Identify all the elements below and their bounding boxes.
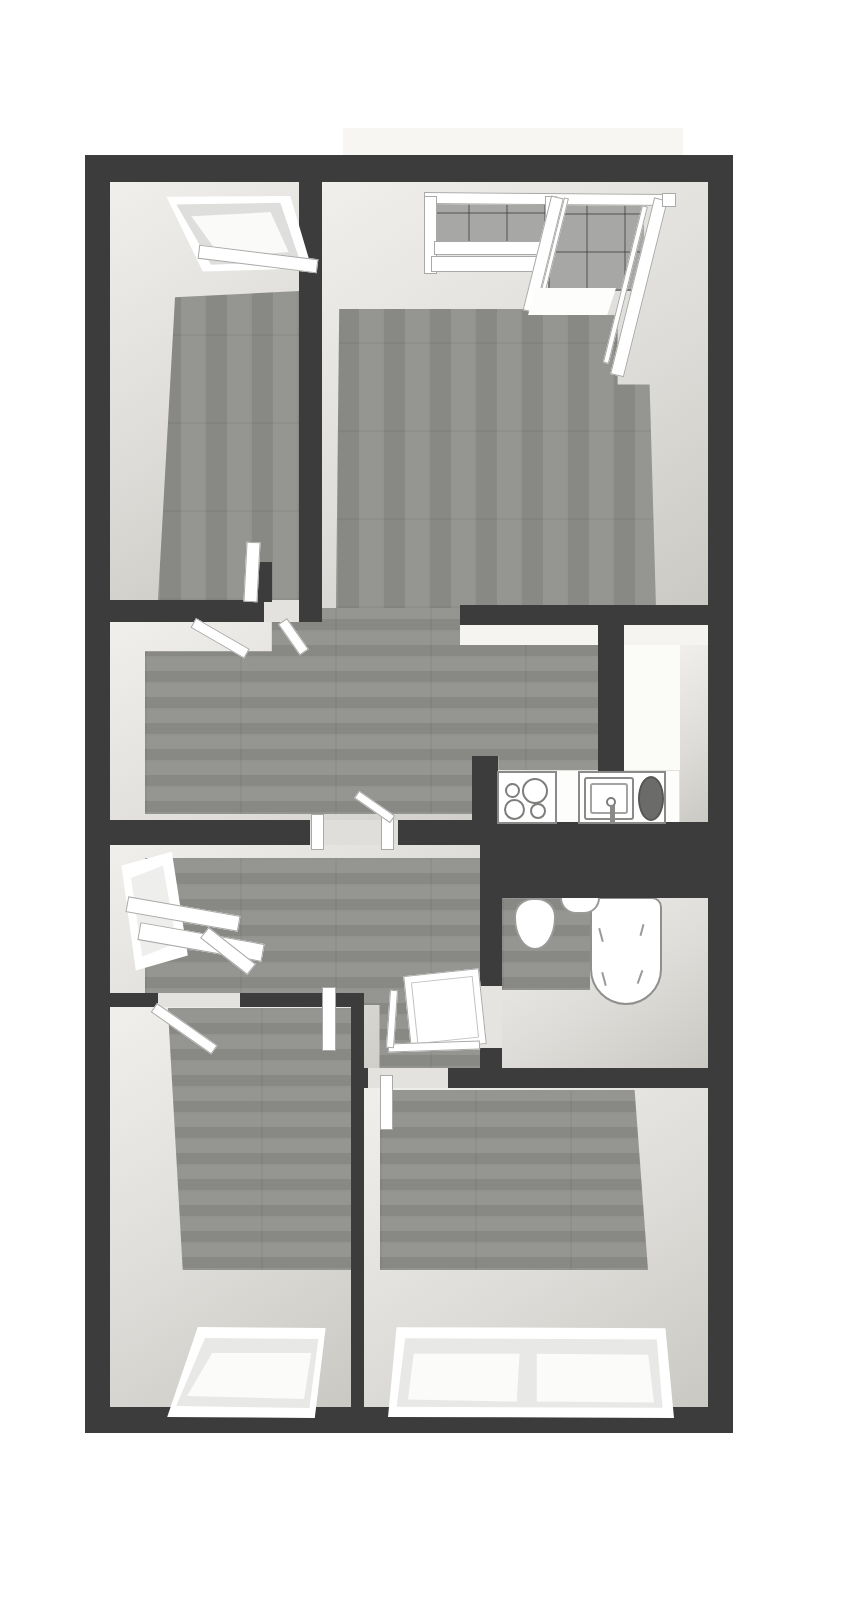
living-window-sill-upper — [434, 241, 548, 255]
bathroom-door-panel-line — [411, 976, 479, 1044]
wall-hall-south-west — [108, 820, 310, 845]
cooktop-burner-large-2 — [504, 799, 525, 820]
page: { "meta": { "width": 867, "height": 1600… — [0, 0, 867, 1600]
room-a-floor — [158, 291, 300, 600]
hall-door-jamb-left — [311, 814, 324, 850]
cooktop-burner-small-1 — [505, 783, 520, 798]
balcony-slab — [343, 128, 683, 157]
wall-hall-south-east — [398, 820, 482, 845]
wall-kitchen-stub — [472, 756, 498, 826]
entry-door-gap — [158, 993, 240, 1007]
bedroom2-door — [380, 1075, 393, 1130]
living-window-right-cap — [662, 193, 676, 207]
cooktop-burner-large-1 — [522, 778, 548, 804]
vestibule-door — [322, 987, 336, 1051]
bedroom2-floor — [380, 1090, 648, 1270]
wall-bathroom-west-lower — [480, 1048, 502, 1070]
kitchen-north-face — [460, 625, 708, 645]
floorplan-image — [0, 0, 867, 1600]
wall-bedroom2-north-west — [351, 1068, 368, 1088]
kitchen-east-face — [680, 645, 710, 825]
wall-shaft — [480, 822, 733, 898]
wall-entry-south-east — [240, 993, 353, 1007]
wall-bedrooms-divider — [351, 993, 364, 1408]
sink-drainer — [638, 776, 664, 821]
cooktop-burner-small-2 — [530, 803, 546, 819]
bathtub — [590, 897, 662, 1005]
wall-entry-south-west — [108, 993, 158, 1007]
wall-outer-left — [85, 155, 110, 1433]
wall-bathroom-west-upper — [480, 898, 502, 986]
room-a-door-gap — [264, 600, 299, 622]
wall-kitchen-west — [598, 625, 624, 772]
wall-outer-top — [85, 155, 733, 182]
wall-room-a-south — [108, 600, 264, 622]
wall-bedroom2-north-east — [448, 1068, 733, 1088]
living-corner-window-sill — [528, 288, 616, 315]
wall-kitchen-north — [460, 605, 708, 625]
wall-outer-right — [708, 155, 733, 1433]
living-window-sill-lower — [431, 256, 547, 272]
sink-faucet-stem — [610, 805, 615, 823]
